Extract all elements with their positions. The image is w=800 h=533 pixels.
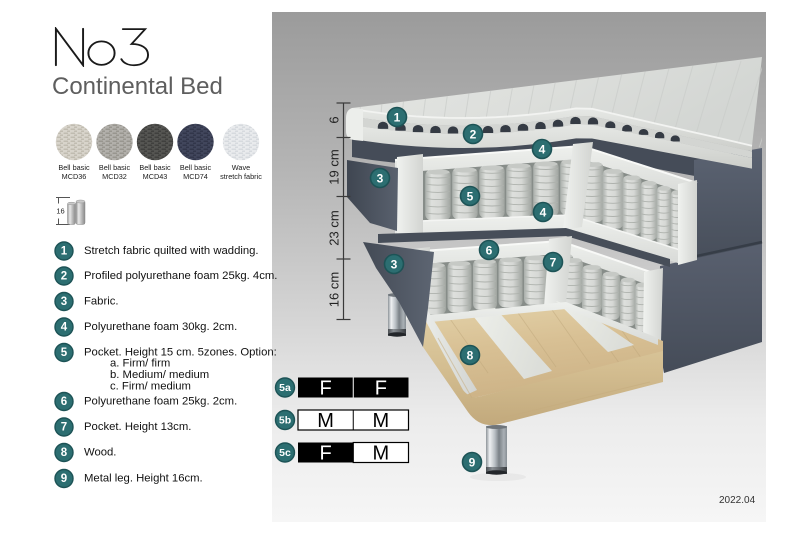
svg-text:5: 5 [467,190,474,204]
svg-text:5c: 5c [279,447,291,459]
svg-text:9: 9 [469,456,476,470]
svg-text:1: 1 [394,111,401,125]
svg-text:Bell basic: Bell basic [180,163,212,172]
svg-text:6: 6 [327,116,342,123]
svg-text:16: 16 [56,207,64,216]
svg-text:M: M [317,410,334,432]
svg-text:Bell basic: Bell basic [58,163,90,172]
svg-text:MCD43: MCD43 [143,172,168,181]
svg-text:Profiled polyurethane foam 25k: Profiled polyurethane foam 25kg. 4cm. [84,270,277,282]
svg-text:c. Firm/ medium: c. Firm/ medium [110,381,191,393]
svg-text:stretch fabric: stretch fabric [220,172,262,181]
svg-text:Metal leg. Height 16cm.: Metal leg. Height 16cm. [84,473,203,485]
svg-text:b. Medium/ medium: b. Medium/ medium [110,369,209,381]
svg-text:Bell basic: Bell basic [99,163,131,172]
svg-text:8: 8 [467,349,474,363]
svg-text:4: 4 [539,143,546,157]
svg-text:MCD36: MCD36 [62,172,87,181]
svg-text:MCD32: MCD32 [102,172,127,181]
svg-text:7: 7 [61,422,67,434]
svg-text:M: M [373,410,390,432]
svg-text:2: 2 [61,271,67,283]
svg-text:Bell basic: Bell basic [139,163,171,172]
svg-text:4: 4 [540,206,547,220]
svg-text:5a: 5a [279,382,291,394]
svg-text:F: F [320,443,332,465]
svg-text:Wood.: Wood. [84,447,116,459]
svg-text:4: 4 [61,322,68,334]
svg-text:a. Firm/ firm: a. Firm/ firm [110,358,170,370]
svg-text:Pocket. Height 13cm.: Pocket. Height 13cm. [84,421,191,433]
svg-text:Polyurethane foam 30kg. 2cm.: Polyurethane foam 30kg. 2cm. [84,321,237,333]
svg-text:Wave: Wave [232,163,250,172]
svg-text:5b: 5b [279,415,291,427]
svg-text:9: 9 [61,473,67,485]
svg-text:6: 6 [61,396,67,408]
svg-text:MCD74: MCD74 [183,172,208,181]
svg-text:8: 8 [61,447,68,459]
svg-text:Fabric.: Fabric. [84,296,119,308]
svg-text:6: 6 [486,244,493,258]
svg-text:F: F [320,378,332,400]
svg-text:19 cm: 19 cm [327,149,342,184]
svg-text:16 cm: 16 cm [327,272,342,307]
svg-text:7: 7 [550,256,557,270]
svg-text:Stretch fabric quilted with wa: Stretch fabric quilted with wadding. [84,245,259,257]
svg-text:3: 3 [377,172,384,186]
svg-text:3: 3 [391,258,398,272]
svg-text:23 cm: 23 cm [327,210,342,245]
svg-text:Polyurethane foam 25kg. 2cm.: Polyurethane foam 25kg. 2cm. [84,396,237,408]
svg-text:F: F [375,378,387,400]
svg-text:2: 2 [470,128,477,142]
svg-text:M: M [373,443,390,465]
svg-text:5: 5 [61,347,68,359]
svg-text:3: 3 [61,296,67,308]
svg-text:1: 1 [61,246,68,258]
